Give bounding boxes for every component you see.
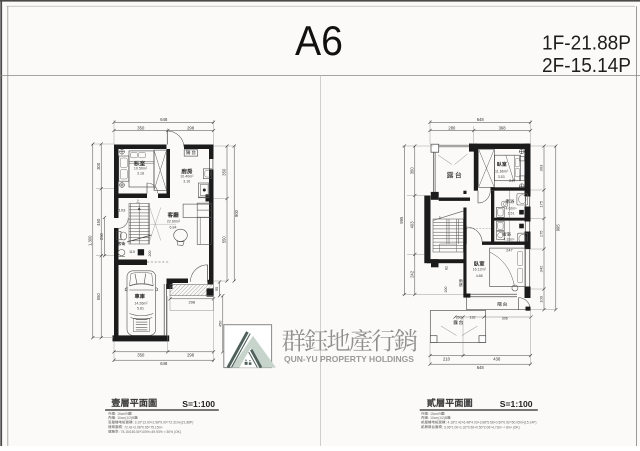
svg-text:368: 368 bbox=[499, 125, 507, 130]
svg-text:900: 900 bbox=[234, 209, 239, 217]
svg-text:200: 200 bbox=[148, 251, 152, 257]
svg-text:132: 132 bbox=[470, 316, 476, 320]
svg-text:A6: A6 bbox=[295, 17, 343, 64]
svg-text:: 4.18*2.42+6.48*4.03+3.68*5.5: : 4.18*2.42+6.48*4.03+3.68*5.58+0.50*0.9… bbox=[446, 421, 537, 425]
svg-text:11.66m²: 11.66m² bbox=[495, 169, 509, 173]
svg-text:10.40m²: 10.40m² bbox=[180, 175, 194, 179]
svg-text:210: 210 bbox=[443, 356, 451, 361]
svg-text:648: 648 bbox=[160, 361, 168, 366]
svg-text:110: 110 bbox=[129, 250, 135, 254]
svg-text:5.81: 5.81 bbox=[137, 307, 144, 311]
svg-text:S=1:100: S=1:100 bbox=[182, 399, 215, 409]
svg-text:298: 298 bbox=[187, 353, 195, 358]
svg-text:648: 648 bbox=[477, 365, 485, 370]
svg-text:S=1:100: S=1:100 bbox=[500, 399, 533, 409]
svg-text:1,300: 1,300 bbox=[87, 235, 92, 246]
svg-text:306: 306 bbox=[502, 317, 508, 321]
svg-text:: 3.10*13.00+2.98*9.00=72.31m²: : 3.10*13.00+2.98*9.00=72.31m²(21.88P) bbox=[133, 421, 194, 425]
svg-text:298: 298 bbox=[187, 125, 195, 130]
svg-text:: 75.15/150.50*100%=49.93% < 5: : 75.15/150.50*100%=49.93% < 50% (OK) bbox=[119, 430, 181, 434]
svg-text:(50): (50) bbox=[456, 316, 462, 320]
svg-text:82: 82 bbox=[445, 266, 449, 270]
svg-text:250: 250 bbox=[99, 232, 104, 240]
svg-text:2F-15.14P: 2F-15.14P bbox=[542, 55, 631, 77]
svg-text:300: 300 bbox=[96, 162, 101, 170]
svg-text:: 10cm(1/2)B: : 10cm(1/2)B bbox=[428, 416, 448, 420]
svg-text:350: 350 bbox=[409, 167, 414, 175]
svg-text:QUN-YU PROPERTY HOLDINGS: QUN-YU PROPERTY HOLDINGS bbox=[284, 355, 415, 364]
svg-text:3.53: 3.53 bbox=[498, 175, 505, 179]
svg-text:350: 350 bbox=[221, 168, 226, 176]
svg-text:550: 550 bbox=[96, 293, 101, 301]
svg-text:450: 450 bbox=[96, 218, 101, 226]
svg-text:303: 303 bbox=[538, 164, 543, 171]
svg-text:995: 995 bbox=[399, 216, 404, 224]
svg-text:22.60m²: 22.60m² bbox=[167, 220, 181, 224]
svg-text:342: 342 bbox=[538, 265, 543, 272]
svg-text:1F-21.88P: 1F-21.88P bbox=[542, 33, 631, 55]
svg-text:4.62m²: 4.62m² bbox=[506, 206, 518, 210]
svg-text:: 10cm(1/2)B: : 10cm(1/2)B bbox=[115, 416, 135, 420]
svg-text:247: 247 bbox=[506, 249, 512, 253]
svg-text:6.84: 6.84 bbox=[170, 225, 177, 229]
svg-text:175: 175 bbox=[538, 200, 543, 207]
svg-text:: 72.42+2.98*0.95=75.15m²: : 72.42+2.98*0.95=75.15m² bbox=[122, 425, 163, 429]
svg-text:438: 438 bbox=[493, 356, 501, 361]
svg-text:103: 103 bbox=[119, 207, 126, 212]
svg-text:10.50m²: 10.50m² bbox=[134, 166, 148, 170]
svg-text:3.18: 3.18 bbox=[137, 171, 144, 175]
svg-text:: 3.06*1.00+1.32*0.50+0.50*2.0: : 3.06*1.00+1.32*0.50+0.50*2.06=4.72m² <… bbox=[442, 425, 520, 429]
svg-text:95: 95 bbox=[215, 287, 219, 291]
svg-text:16.12m²: 16.12m² bbox=[473, 267, 487, 271]
svg-text:450: 450 bbox=[218, 321, 222, 327]
svg-text:100: 100 bbox=[538, 295, 543, 302]
svg-text:298: 298 bbox=[188, 299, 195, 304]
svg-text:280: 280 bbox=[448, 125, 456, 130]
svg-text:242: 242 bbox=[409, 270, 414, 278]
svg-text:648: 648 bbox=[160, 117, 168, 122]
svg-text:403: 403 bbox=[409, 221, 414, 229]
svg-text:350: 350 bbox=[137, 125, 145, 130]
svg-text:3.16: 3.16 bbox=[183, 180, 190, 184]
svg-text:1.51: 1.51 bbox=[508, 212, 515, 216]
svg-text:648: 648 bbox=[477, 117, 485, 122]
svg-text:175: 175 bbox=[538, 230, 543, 237]
svg-text:995: 995 bbox=[556, 224, 561, 232]
svg-text:4.88: 4.88 bbox=[476, 274, 483, 278]
svg-text:350: 350 bbox=[137, 353, 145, 358]
svg-text:550: 550 bbox=[221, 236, 226, 244]
svg-text:14.26m²: 14.26m² bbox=[134, 301, 148, 305]
svg-text:200: 200 bbox=[444, 287, 448, 293]
svg-text:247: 247 bbox=[509, 179, 515, 183]
